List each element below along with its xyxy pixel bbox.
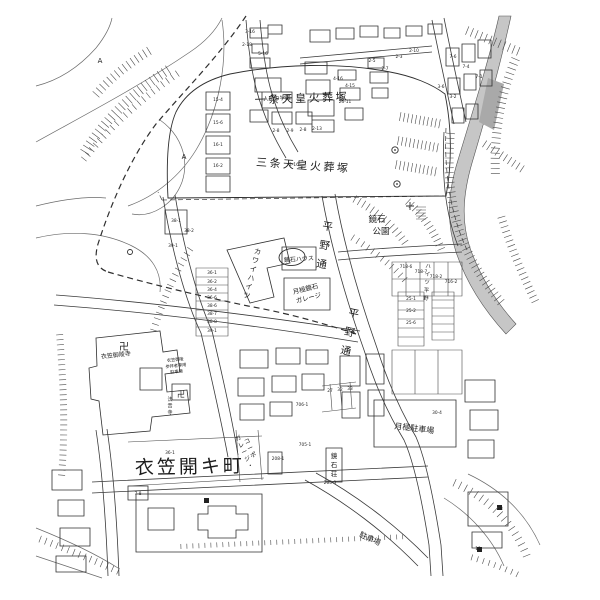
parcel-number: 36-6 xyxy=(207,295,217,301)
svg-text:ハ: ハ xyxy=(247,274,256,283)
svg-text:ワ: ワ xyxy=(251,256,260,265)
parcel-number: 2-9 xyxy=(286,128,293,134)
parcel-number: 16-2 xyxy=(213,163,223,169)
parcel-number: 2-18 xyxy=(242,42,252,48)
parcel-number: 39-1 xyxy=(207,328,217,334)
parcel-number: 38-2 xyxy=(184,228,194,234)
park-label-line1: 鏡石 xyxy=(368,214,385,225)
parcel-number: 2-10 xyxy=(409,48,419,54)
visitor-parking-line3: 駐車場 xyxy=(170,367,184,375)
parcel-number: 208-1 xyxy=(272,456,285,462)
hatch-ticks xyxy=(482,141,524,173)
map-vertical-label: 法音寺 xyxy=(167,396,172,416)
map-labels: 一条天皇火葬塚 三条天皇火葬塚 鏡石 公園 衣笠開キ町 鏡石ハウス 月極鏡石 ガ… xyxy=(98,57,435,548)
parcel-number: 16-1 xyxy=(213,142,223,148)
parcel-number: 705-1 xyxy=(299,442,312,448)
hatch-ticks xyxy=(93,47,152,97)
parcel-number: 7-4 xyxy=(462,64,469,70)
svg-text:寺: 寺 xyxy=(167,410,172,416)
survey-mark: A xyxy=(98,57,103,65)
parcel-number: 25-2 xyxy=(406,308,416,314)
hatch-ticks xyxy=(405,199,445,251)
parcel-number: 36-1 xyxy=(165,450,175,456)
parcel-number: 39-1 xyxy=(168,243,178,249)
map-screenshot: 一条天皇火葬塚 三条天皇火葬塚 鏡石 公園 衣笠開キ町 鏡石ハウス 月極鏡石 ガ… xyxy=(0,0,600,600)
svg-text:石: 石 xyxy=(331,461,338,469)
parcel-number: 38-1 xyxy=(171,218,181,224)
parcel-number: 2-8 xyxy=(272,128,279,134)
hatch-ticks xyxy=(399,112,440,128)
parcel-number: 33 xyxy=(347,386,353,392)
parcel-number: 36-1 xyxy=(207,270,217,276)
visitor-parking-label: 衣笠御陵 参拝者専用 駐車場 xyxy=(164,355,187,376)
parcel-number: 38-8 xyxy=(207,319,217,325)
svg-text:平: 平 xyxy=(321,220,333,233)
svg-text:鏡: 鏡 xyxy=(331,451,338,460)
parcel-number: 716-2 xyxy=(445,279,458,285)
river xyxy=(449,16,516,334)
parcel-number: 718-2 xyxy=(430,274,443,280)
parcel-number: 2-5 xyxy=(368,58,375,64)
svg-text:通: 通 xyxy=(315,258,328,272)
svg-text:平: 平 xyxy=(423,287,429,294)
svg-text:野: 野 xyxy=(423,294,430,302)
tomb-sanjo-label: 三条天皇火葬塚 xyxy=(256,155,351,176)
parcel-number: 15-4 xyxy=(213,97,223,103)
parcel-number: 7-1 xyxy=(475,74,482,80)
svg-text:荘: 荘 xyxy=(331,469,338,478)
parcel-number: 7-6 xyxy=(449,54,456,60)
parcel-number: 2-7 xyxy=(381,66,388,72)
town-name-label: 衣笠開キ町 xyxy=(135,455,245,479)
parcel-number: 5-16 xyxy=(258,51,268,57)
svg-text:ツ: ツ xyxy=(424,280,430,286)
map-vertical-label: カワイハイツ xyxy=(242,247,262,300)
svg-text:イ: イ xyxy=(244,282,253,291)
parcel-number: 4-16 xyxy=(333,76,343,82)
parking-label: 駐車場 xyxy=(358,529,383,547)
parcel-number: 2-3 xyxy=(395,54,402,60)
map-vertical-label: 鏡石荘 xyxy=(331,451,338,478)
svg-text:野: 野 xyxy=(343,326,356,340)
parcel-number: 3-6 xyxy=(437,84,444,90)
parcel-number: 15-6 xyxy=(213,120,223,126)
parcel-number: 205-3 xyxy=(324,480,337,486)
parcel-number: 38-6 xyxy=(207,303,217,309)
building-outlines xyxy=(52,24,508,572)
svg-text:法: 法 xyxy=(167,396,172,403)
parcel-number: 718-6 xyxy=(400,264,413,270)
hatch-ticks xyxy=(453,479,530,557)
hatch-ticks xyxy=(471,555,519,578)
svg-text:ツ: ツ xyxy=(242,291,251,300)
parcel-number: 25-11 xyxy=(339,99,352,105)
cross-marker-icon xyxy=(406,202,414,210)
cadastral-map: 一条天皇火葬塚 三条天皇火葬塚 鏡石 公園 衣笠開キ町 鏡石ハウス 月極鏡石 ガ… xyxy=(0,0,600,600)
parcel-number: 32 xyxy=(337,387,343,393)
parcel-number: 3-2 xyxy=(449,94,456,100)
parcel-number: 19 xyxy=(475,546,481,552)
well-marker-icon xyxy=(128,250,133,255)
park-label-line2: 公園 xyxy=(372,227,389,237)
hatch-ticks xyxy=(397,136,438,152)
hatch-ticks xyxy=(56,334,67,475)
temple-swastika-icon: 卍 xyxy=(119,341,129,353)
parcel-number: 18 xyxy=(497,506,503,512)
svg-text:カ: カ xyxy=(253,247,262,256)
svg-text:イ: イ xyxy=(249,265,258,274)
hatch-ticks xyxy=(416,207,426,219)
temple-swastika-icon: 卍 xyxy=(177,390,185,399)
svg-text:野: 野 xyxy=(318,239,331,253)
parcel-number: 25-6 xyxy=(406,320,416,326)
parcel-number: 2-13 xyxy=(312,126,322,132)
parcel-number: 706-1 xyxy=(296,402,309,408)
parcel-number: 25-1 xyxy=(406,296,416,302)
parcel-number: 7-8 xyxy=(134,491,141,497)
hatch-ticks xyxy=(81,71,179,162)
parcel-number: 38-7 xyxy=(207,311,217,317)
parcel-number: 2-16 xyxy=(289,162,299,168)
parcel-number: 27 xyxy=(327,388,333,394)
municipal-boundary xyxy=(96,16,468,334)
parcel-number: 3-16 xyxy=(245,29,255,35)
hatch-ticks xyxy=(498,216,539,303)
map-vertical-label: 平野通 xyxy=(315,220,334,271)
svg-text:平: 平 xyxy=(347,307,360,321)
map-vertical-label: 平野通 xyxy=(339,307,360,358)
parcel-number: 36-4 xyxy=(207,287,217,293)
svg-text:・: ・ xyxy=(246,462,254,471)
hatch-ticks xyxy=(395,160,436,176)
parcel-number: 718-7 xyxy=(415,269,428,275)
parcel-number: 30-4 xyxy=(432,410,442,416)
svg-text:音: 音 xyxy=(167,403,172,410)
parcel-number: 2-8 xyxy=(299,127,306,133)
parcel-number: 4-15 xyxy=(345,83,355,89)
parcel-number: 36-2 xyxy=(207,279,217,285)
survey-mark: A xyxy=(182,153,187,161)
